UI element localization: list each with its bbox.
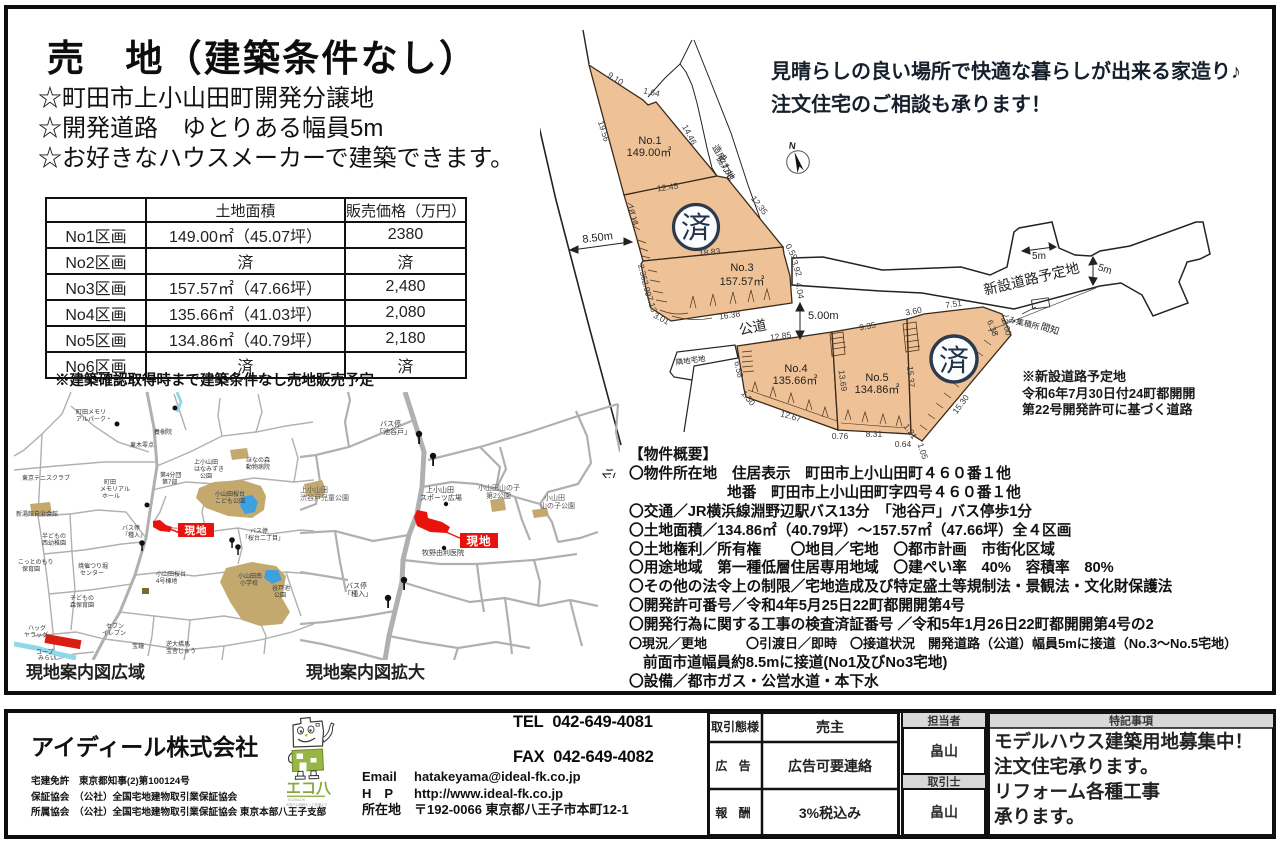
svg-text:センター: センター bbox=[80, 569, 104, 577]
svg-text:0.76: 0.76 bbox=[832, 431, 849, 441]
svg-text:セブン: セブン bbox=[106, 622, 124, 630]
svg-text:畠山: 畠山 bbox=[930, 804, 958, 820]
svg-text:ほなの森: ほなの森 bbox=[246, 456, 270, 464]
svg-text:宝鐘: 宝鐘 bbox=[132, 642, 144, 650]
svg-text:小山田桜台: 小山田桜台 bbox=[156, 570, 186, 578]
svg-text:東木零点: 東木零点 bbox=[130, 441, 154, 449]
svg-text:5.00m: 5.00m bbox=[808, 310, 839, 322]
svg-text:チどもの: チどもの bbox=[70, 594, 94, 602]
svg-text:ヤラッグ: ヤラッグ bbox=[24, 631, 48, 639]
svg-text:No.4: No.4 bbox=[784, 363, 807, 375]
svg-text:16.38: 16.38 bbox=[718, 309, 741, 322]
svg-text:No.3: No.3 bbox=[730, 262, 753, 274]
svg-text:小山田南: 小山田南 bbox=[238, 572, 262, 580]
svg-text:No.1: No.1 bbox=[638, 135, 661, 147]
svg-text:東京テニスクラブ: 東京テニスクラブ bbox=[22, 474, 70, 482]
svg-text:森保育園: 森保育園 bbox=[70, 601, 94, 609]
svg-text:小学校: 小学校 bbox=[240, 579, 258, 587]
svg-text:町田: 町田 bbox=[104, 479, 116, 486]
svg-text:公園: 公園 bbox=[274, 592, 286, 599]
svg-text:7.51: 7.51 bbox=[945, 298, 963, 310]
svg-text:半どもの: 半どもの bbox=[42, 532, 66, 540]
svg-text:エコ八: エコ八 bbox=[286, 780, 332, 797]
svg-text:はなみずき: はなみずき bbox=[194, 465, 224, 473]
svg-text:広 告: 広 告 bbox=[715, 758, 754, 773]
svg-text:小山田桜台: 小山田桜台 bbox=[215, 490, 245, 498]
svg-text:バス停: バス停 bbox=[380, 419, 401, 428]
svg-text:157.57㎡: 157.57㎡ bbox=[720, 275, 765, 288]
svg-text:こっとのもり: こっとのもり bbox=[18, 559, 54, 566]
svg-text:上小山田: 上小山田 bbox=[426, 485, 454, 494]
svg-text:小山田: 小山田 bbox=[544, 493, 565, 502]
svg-text:報 酬: 報 酬 bbox=[715, 805, 754, 820]
svg-text:西幼稚園: 西幼稚園 bbox=[42, 539, 66, 547]
svg-text:現地: 現地 bbox=[467, 534, 492, 548]
svg-text:新設道路予定地: 新設道路予定地 bbox=[982, 259, 1081, 297]
svg-text:コープ: コープ bbox=[36, 649, 54, 656]
svg-text:上小山田: 上小山田 bbox=[300, 485, 328, 494]
svg-text:イレブン: イレブン bbox=[102, 629, 126, 637]
svg-text:ECOHACHI: ECOHACHI bbox=[288, 798, 305, 802]
svg-text:「種入」: 「種入」 bbox=[122, 531, 146, 539]
svg-text:逆大橋馬: 逆大橋馬 bbox=[166, 640, 190, 648]
svg-text:No.5: No.5 bbox=[865, 372, 888, 384]
svg-text:焼催つり堀: 焼催つり堀 bbox=[78, 562, 108, 570]
svg-text:町田メモリ: 町田メモリ bbox=[76, 409, 106, 416]
svg-text:済: 済 bbox=[681, 212, 711, 245]
svg-text:149.00㎡: 149.00㎡ bbox=[627, 146, 672, 159]
svg-text:アルパーク・: アルパーク・ bbox=[76, 416, 112, 423]
svg-text:広告可要連絡: 広告可要連絡 bbox=[788, 758, 873, 774]
svg-text:犬猫下の挑戦もっと知識より: 犬猫下の挑戦もっと知識より bbox=[286, 802, 327, 807]
svg-text:第7部: 第7部 bbox=[162, 478, 177, 486]
svg-text:バス停: バス停 bbox=[250, 527, 268, 535]
svg-text:取引士: 取引士 bbox=[928, 775, 961, 789]
svg-text:新湯館自治会館: 新湯館自治会館 bbox=[16, 510, 58, 518]
svg-text:「種入」: 「種入」 bbox=[344, 590, 372, 598]
svg-text:担当者: 担当者 bbox=[928, 714, 961, 728]
svg-text:スポーツ広場: スポーツ広場 bbox=[420, 493, 462, 502]
svg-text:済: 済 bbox=[939, 345, 969, 378]
svg-text:小山田山の子: 小山田山の子 bbox=[478, 483, 520, 492]
svg-text:「桜台二丁目」: 「桜台二丁目」 bbox=[242, 534, 284, 542]
svg-text:ハッグ: ハッグ bbox=[28, 624, 46, 632]
svg-text:宝舎じゅう: 宝舎じゅう bbox=[166, 647, 196, 655]
svg-text:取引態様: 取引態様 bbox=[711, 719, 760, 734]
svg-text:5m: 5m bbox=[1032, 251, 1046, 262]
svg-text:15.37: 15.37 bbox=[905, 366, 917, 388]
svg-text:「池谷戸」: 「池谷戸」 bbox=[376, 427, 411, 436]
svg-text:山の子公園: 山の子公園 bbox=[540, 501, 575, 510]
svg-text:バス停: バス停 bbox=[122, 524, 140, 532]
svg-text:こども公園: こども公園 bbox=[215, 497, 245, 505]
svg-text:8.50m: 8.50m bbox=[582, 230, 614, 246]
svg-text:5m: 5m bbox=[1096, 262, 1113, 277]
svg-text:8.31: 8.31 bbox=[866, 429, 883, 439]
svg-text:メモリアル: メモリアル bbox=[100, 486, 130, 493]
svg-text:保育園: 保育園 bbox=[22, 565, 40, 573]
svg-text:畠山: 畠山 bbox=[930, 743, 958, 759]
svg-text:1.64: 1.64 bbox=[642, 85, 661, 98]
svg-text:渋谷戸児童公園: 渋谷戸児童公園 bbox=[300, 493, 349, 502]
svg-text:谷戸池: 谷戸池 bbox=[272, 584, 290, 592]
svg-text:特記事項: 特記事項 bbox=[1109, 714, 1154, 728]
svg-text:134.86㎡: 134.86㎡ bbox=[855, 383, 900, 396]
svg-text:ホール: ホール bbox=[102, 493, 120, 500]
svg-text:公道: 公道 bbox=[737, 316, 768, 337]
svg-text:第2公園: 第2公園 bbox=[486, 491, 511, 500]
svg-text:バス停: バス停 bbox=[346, 581, 367, 590]
svg-text:養樹院: 養樹院 bbox=[154, 428, 172, 436]
svg-text:上小山田: 上小山田 bbox=[194, 458, 218, 466]
svg-text:現地: 現地 bbox=[185, 524, 208, 537]
svg-text:間知: 間知 bbox=[1039, 320, 1061, 337]
svg-text:3%税込み: 3%税込み bbox=[799, 805, 861, 821]
svg-text:4.04: 4.04 bbox=[794, 281, 807, 299]
svg-text:動物病院: 動物病院 bbox=[246, 463, 270, 471]
svg-text:売主: 売主 bbox=[816, 719, 844, 735]
svg-text:公園: 公園 bbox=[200, 473, 212, 480]
svg-text:6.58: 6.58 bbox=[732, 360, 745, 379]
svg-text:135.66㎡: 135.66㎡ bbox=[773, 374, 818, 387]
svg-text:4号棟地: 4号棟地 bbox=[156, 577, 177, 585]
svg-text:牧野由利医院: 牧野由利医院 bbox=[422, 548, 464, 557]
svg-text:第4分団: 第4分団 bbox=[160, 471, 181, 479]
